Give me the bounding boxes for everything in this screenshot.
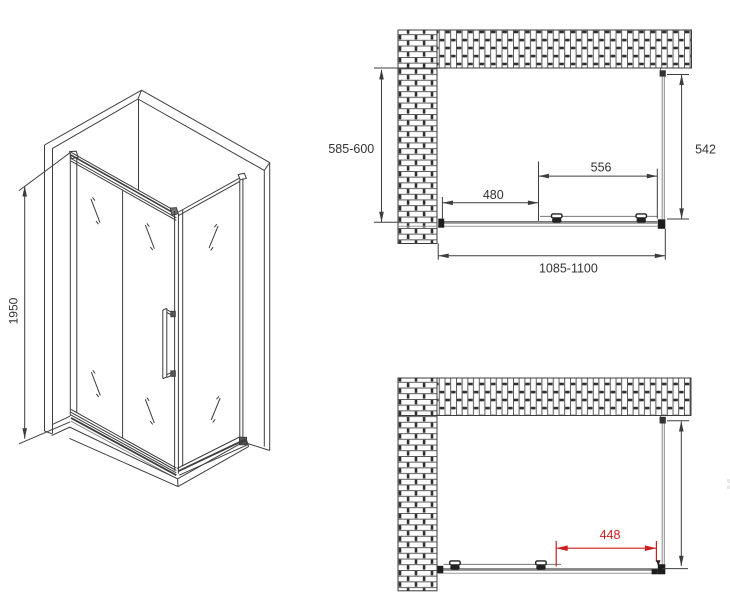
svg-text:1950: 1950: [7, 297, 21, 324]
svg-text:480: 480: [483, 188, 504, 202]
svg-text:585-600: 585-600: [328, 142, 374, 156]
svg-text:1085-1100: 1085-1100: [539, 261, 598, 275]
svg-text:542: 542: [695, 142, 716, 156]
svg-text:448: 448: [600, 528, 621, 542]
svg-text:556: 556: [591, 161, 612, 175]
